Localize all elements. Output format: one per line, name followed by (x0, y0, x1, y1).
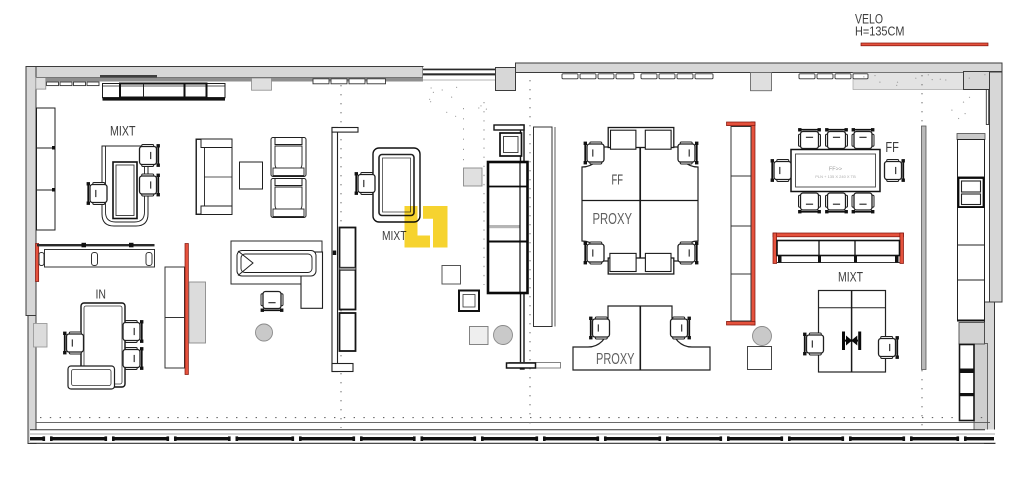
svg-text:IN: IN (96, 286, 107, 301)
svg-text:MIXT: MIXT (382, 228, 407, 243)
svg-text:FF: FF (612, 172, 624, 188)
svg-text:MIXT: MIXT (110, 123, 136, 138)
svg-text:PROXY: PROXY (593, 211, 633, 228)
svg-text:H=135CM: H=135CM (855, 24, 905, 38)
svg-text:FF>>: FF>> (829, 167, 842, 173)
svg-text:PROXY: PROXY (596, 351, 635, 368)
svg-text:FF: FF (885, 139, 899, 156)
svg-text:MIXT: MIXT (838, 270, 863, 285)
svg-text:PLN + 135 X 240 X TB: PLN + 135 X 240 X TB (815, 174, 856, 179)
